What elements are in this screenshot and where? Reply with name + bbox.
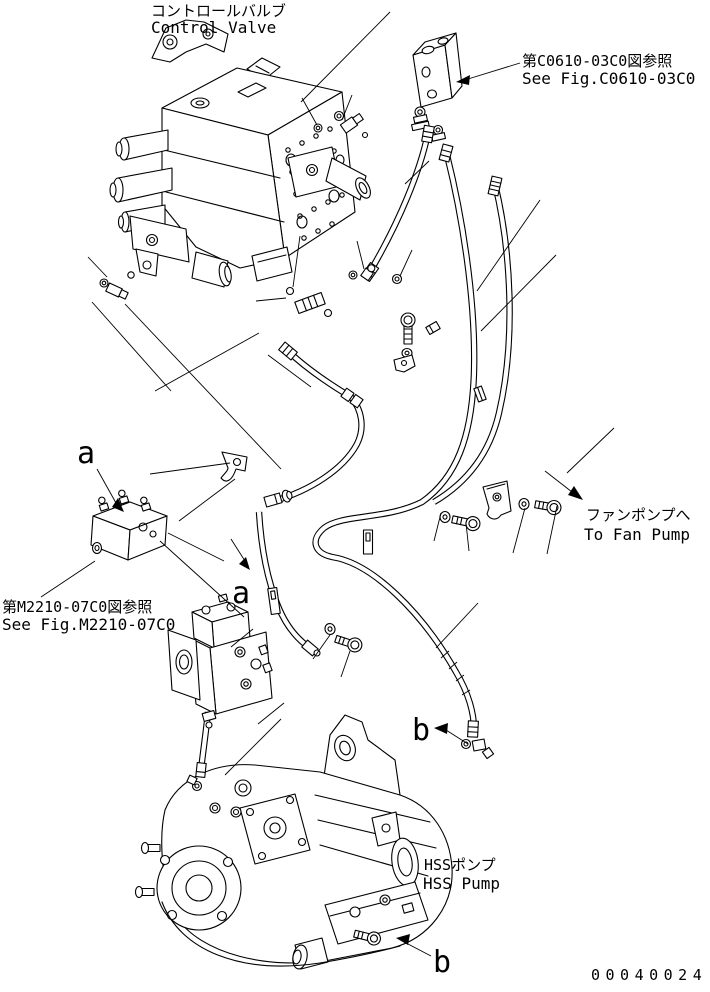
label-point-b-upper: b [412, 713, 430, 748]
label-point-b-lower: b [433, 945, 451, 980]
label-see-fig-c0610-jp: 第C0610-03C0図参照 [522, 52, 672, 70]
label-point-a-lower: a [232, 576, 250, 611]
reference-block-c0610 [412, 33, 462, 141]
label-control-valve-en: Control Valve [151, 18, 276, 37]
label-hss-pump-jp: HSSポンプ [424, 856, 496, 874]
label-to-fan-pump-jp: ファンポンプへ [586, 506, 691, 524]
label-see-fig-m2210-en: See Fig.M2210-07C0 [2, 615, 175, 634]
arrow-point-a-lower [231, 539, 250, 570]
label-see-fig-c0610-en: See Fig.C0610-03C0 [522, 69, 695, 88]
arrow-point-b-upper [434, 723, 468, 744]
label-hss-pump-en: HSS Pump [423, 874, 500, 893]
arrow-see-fig-c0610 [456, 63, 520, 85]
label-point-a-upper: a [77, 436, 95, 471]
label-see-fig-m2210-jp: 第M2210-07C0図参照 [2, 598, 152, 616]
control-valve-drawing [110, 20, 373, 287]
arrow-to-fan-pump [545, 471, 583, 500]
hss-pump-drawing [136, 715, 453, 970]
manifold-m2210 [91, 489, 167, 560]
solenoid-valve-drawing [168, 594, 272, 728]
piping-diagram: コントロールバルブ Control Valve 第C0610-03C0図参照 S… [0, 0, 710, 992]
parts-diagram-sheet: コントロールバルブ Control Valve 第C0610-03C0図参照 S… [0, 0, 710, 992]
label-to-fan-pump-en: To Fan Pump [584, 525, 690, 544]
drawing-number: 00040024 [591, 966, 707, 984]
